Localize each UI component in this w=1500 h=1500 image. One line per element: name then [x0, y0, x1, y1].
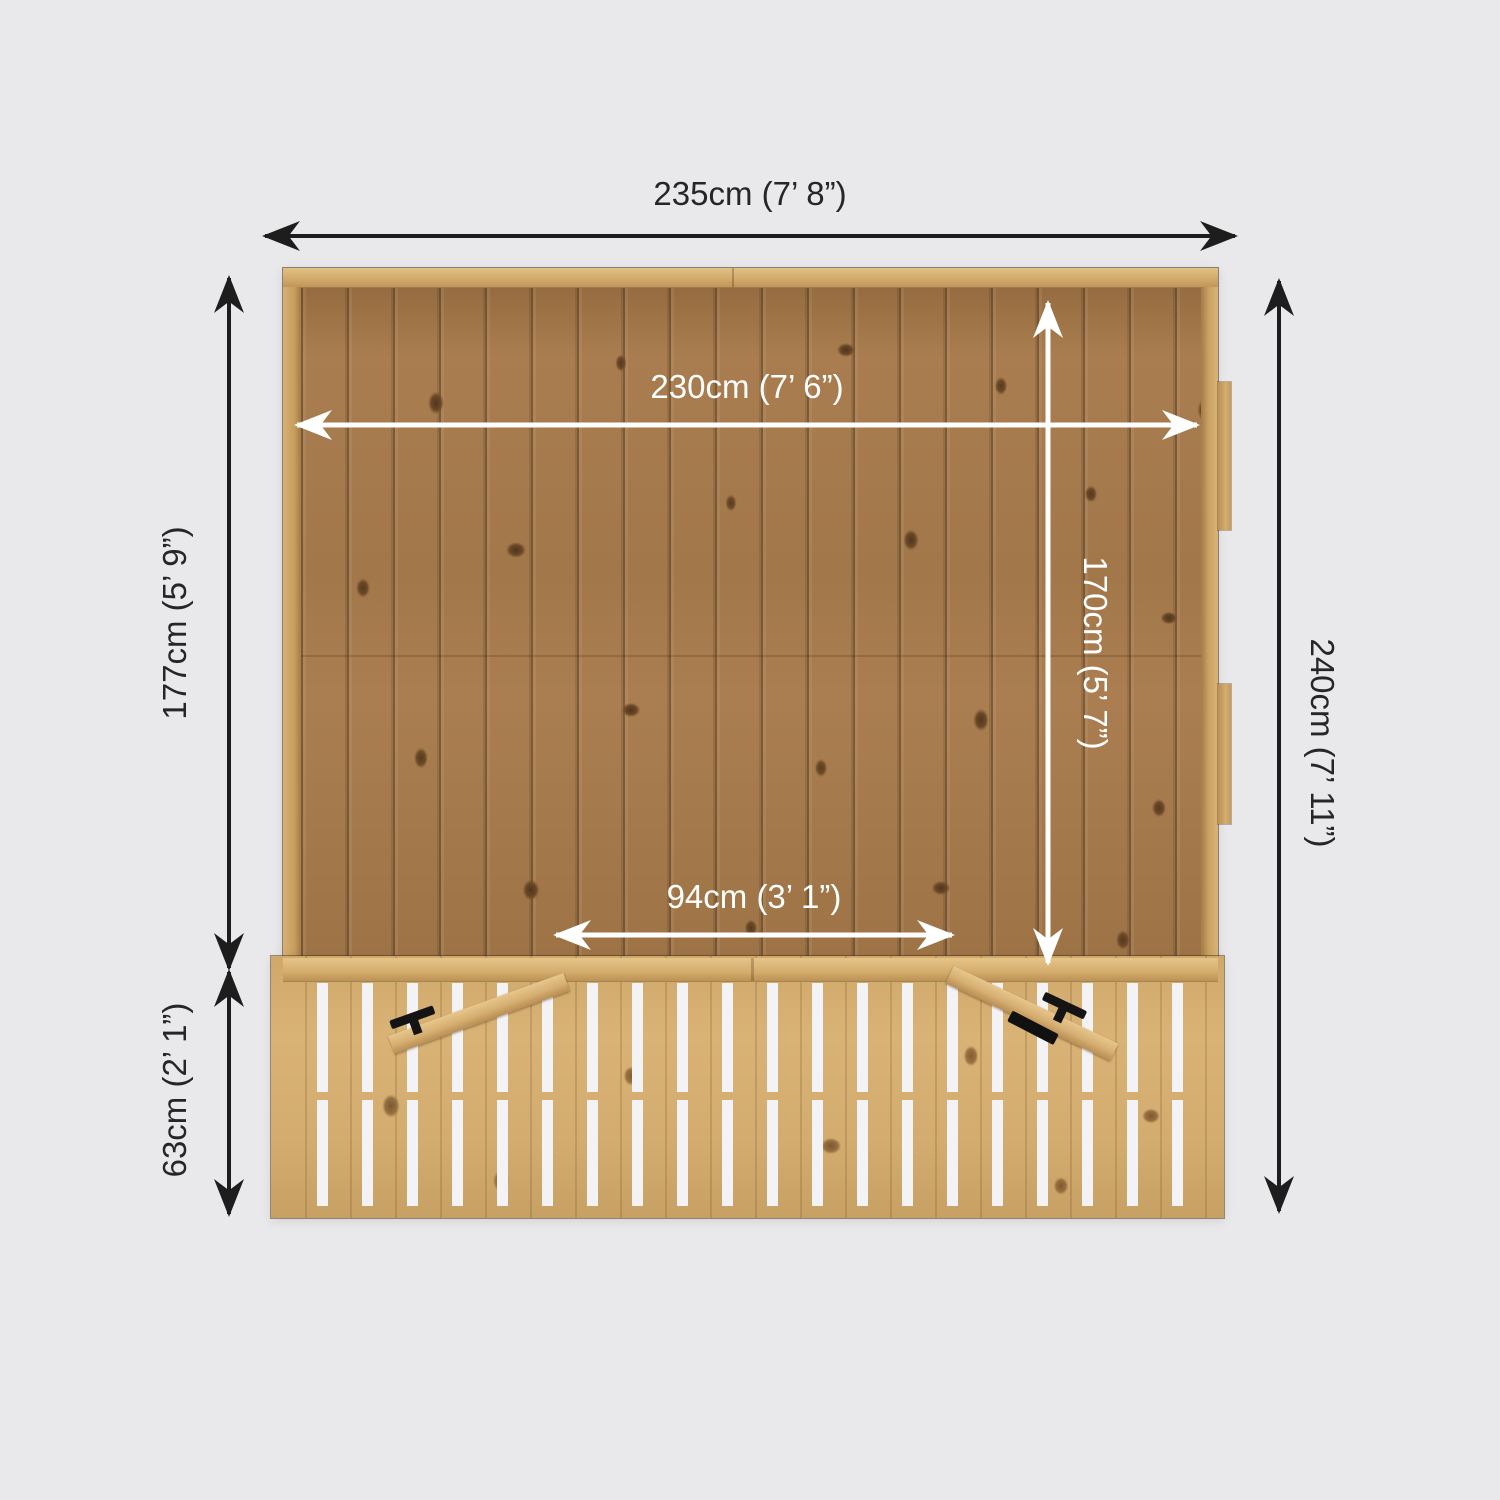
front-wall-rail	[283, 958, 1218, 982]
building-depth-dimension: 177cm (5’ 9”)	[212, 278, 246, 968]
overall-width-dimension: 235cm (7’ 8”)	[265, 219, 1235, 253]
side-window-ledge-top	[1218, 382, 1231, 530]
overall-depth-dimension: 240cm (7’ 11”)	[1262, 281, 1296, 1211]
dimension-line	[227, 972, 231, 1214]
roof-frame-right	[1201, 287, 1218, 968]
dimension-line	[1046, 303, 1051, 963]
door-opening-dimension: 94cm (3’ 1”)	[556, 918, 952, 952]
deck-slat-gaps-row2	[317, 1100, 1186, 1206]
overall-width-label: 235cm (7’ 8”)	[265, 175, 1235, 213]
veranda-depth-label: 63cm (2’ 1”)	[156, 1003, 194, 1178]
internal-depth-dimension: 170cm (5’ 7”)	[1031, 303, 1065, 963]
side-window-ledge-bottom	[1218, 684, 1231, 824]
door-opening-label: 94cm (3’ 1”)	[556, 878, 952, 916]
veranda-deck	[271, 956, 1224, 1218]
dimension-line	[556, 933, 952, 938]
dimension-diagram: 235cm (7’ 8”) 230cm (7’ 6”) 170cm (5’ 7”…	[0, 0, 1500, 1500]
dimension-line	[265, 234, 1235, 238]
veranda-depth-dimension: 63cm (2’ 1”)	[212, 972, 246, 1214]
building-depth-label: 177cm (5’ 9”)	[156, 526, 194, 719]
dimension-line	[227, 278, 231, 968]
internal-depth-label: 170cm (5’ 7”)	[1076, 556, 1114, 749]
dimension-line	[1277, 281, 1281, 1211]
overall-depth-label: 240cm (7’ 11”)	[1303, 638, 1341, 847]
roof-frame-top	[283, 268, 1218, 288]
